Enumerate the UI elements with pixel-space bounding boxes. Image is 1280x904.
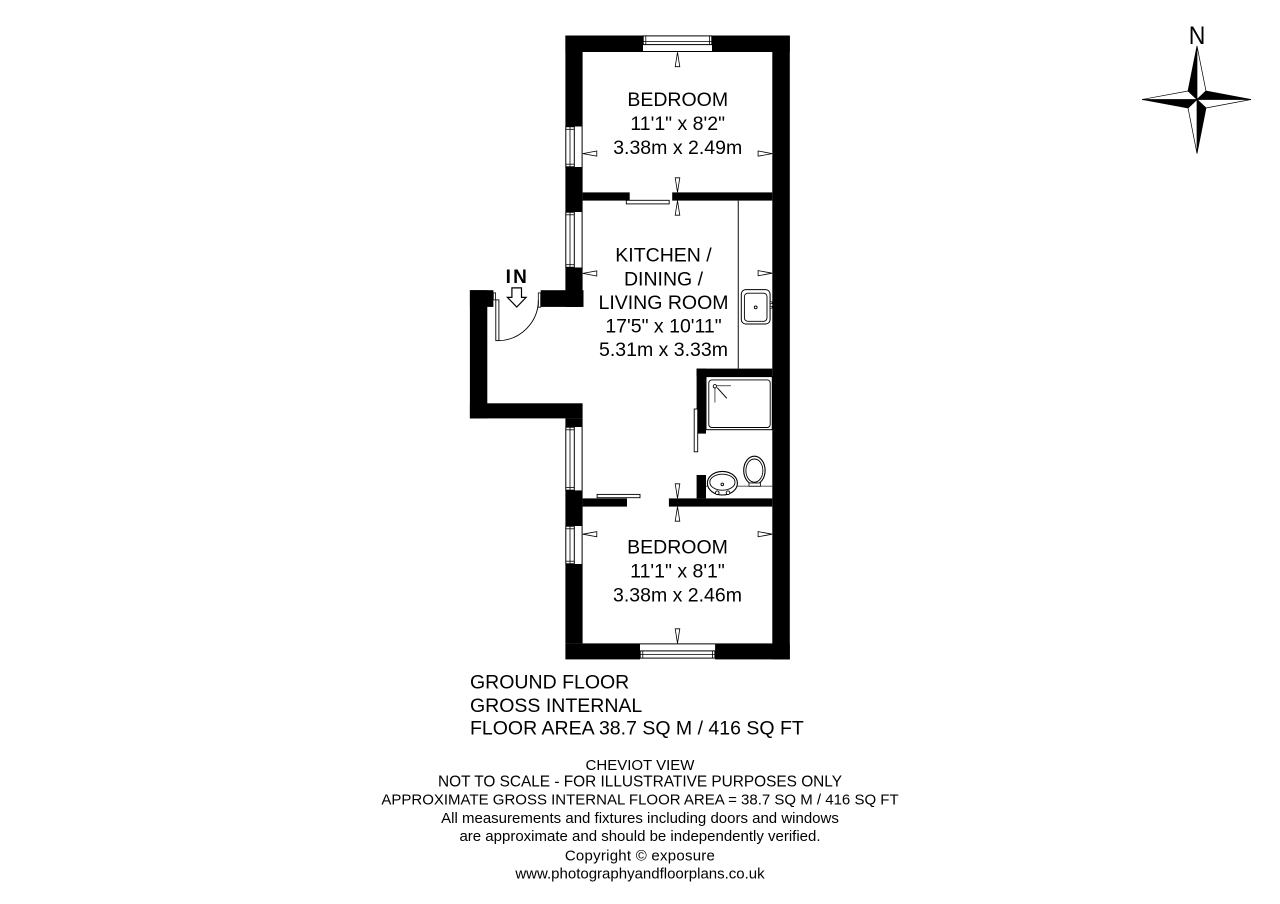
svg-text:APPROXIMATE GROSS INTERNAL FLO: APPROXIMATE GROSS INTERNAL FLOOR AREA = … <box>381 791 898 808</box>
svg-text:BEDROOM: BEDROOM <box>627 89 728 111</box>
svg-text:Copyright © exposure: Copyright © exposure <box>565 848 715 865</box>
svg-text:KITCHEN /: KITCHEN / <box>615 245 712 267</box>
svg-text:GROUND FLOOR: GROUND FLOOR <box>470 672 629 694</box>
svg-text:17'5" x 10'11": 17'5" x 10'11" <box>605 316 721 338</box>
svg-text:DINING /: DINING / <box>624 268 704 290</box>
svg-text:CHEVIOT VIEW: CHEVIOT VIEW <box>586 757 696 774</box>
svg-text:NOT TO SCALE - FOR ILLUSTRATIV: NOT TO SCALE - FOR ILLUSTRATIVE PURPOSES… <box>438 774 842 791</box>
svg-text:are approximate and should be: are approximate and should be independen… <box>459 828 820 845</box>
svg-text:IN: IN <box>506 267 529 288</box>
svg-text:3.38m x 2.49m: 3.38m x 2.49m <box>613 137 742 159</box>
svg-text:11'1" x 8'1": 11'1" x 8'1" <box>630 561 725 583</box>
svg-text:3.38m x 2.46m: 3.38m x 2.46m <box>613 584 742 606</box>
svg-text:www.photographyandfloorplans.c: www.photographyandfloorplans.co.uk <box>514 866 765 883</box>
svg-text:LIVING ROOM: LIVING ROOM <box>598 292 728 314</box>
svg-text:N: N <box>1189 22 1206 50</box>
svg-text:5.31m x 3.33m: 5.31m x 3.33m <box>599 339 728 361</box>
svg-text:BEDROOM: BEDROOM <box>627 537 728 559</box>
svg-text:GROSS INTERNAL: GROSS INTERNAL <box>470 695 642 717</box>
svg-text:All measurements and fixtures: All measurements and fixtures including … <box>441 810 839 827</box>
svg-text:11'1" x 8'2": 11'1" x 8'2" <box>630 113 725 135</box>
svg-text:FLOOR AREA 38.7 SQ M / 416 SQ: FLOOR AREA 38.7 SQ M / 416 SQ FT <box>470 717 804 739</box>
